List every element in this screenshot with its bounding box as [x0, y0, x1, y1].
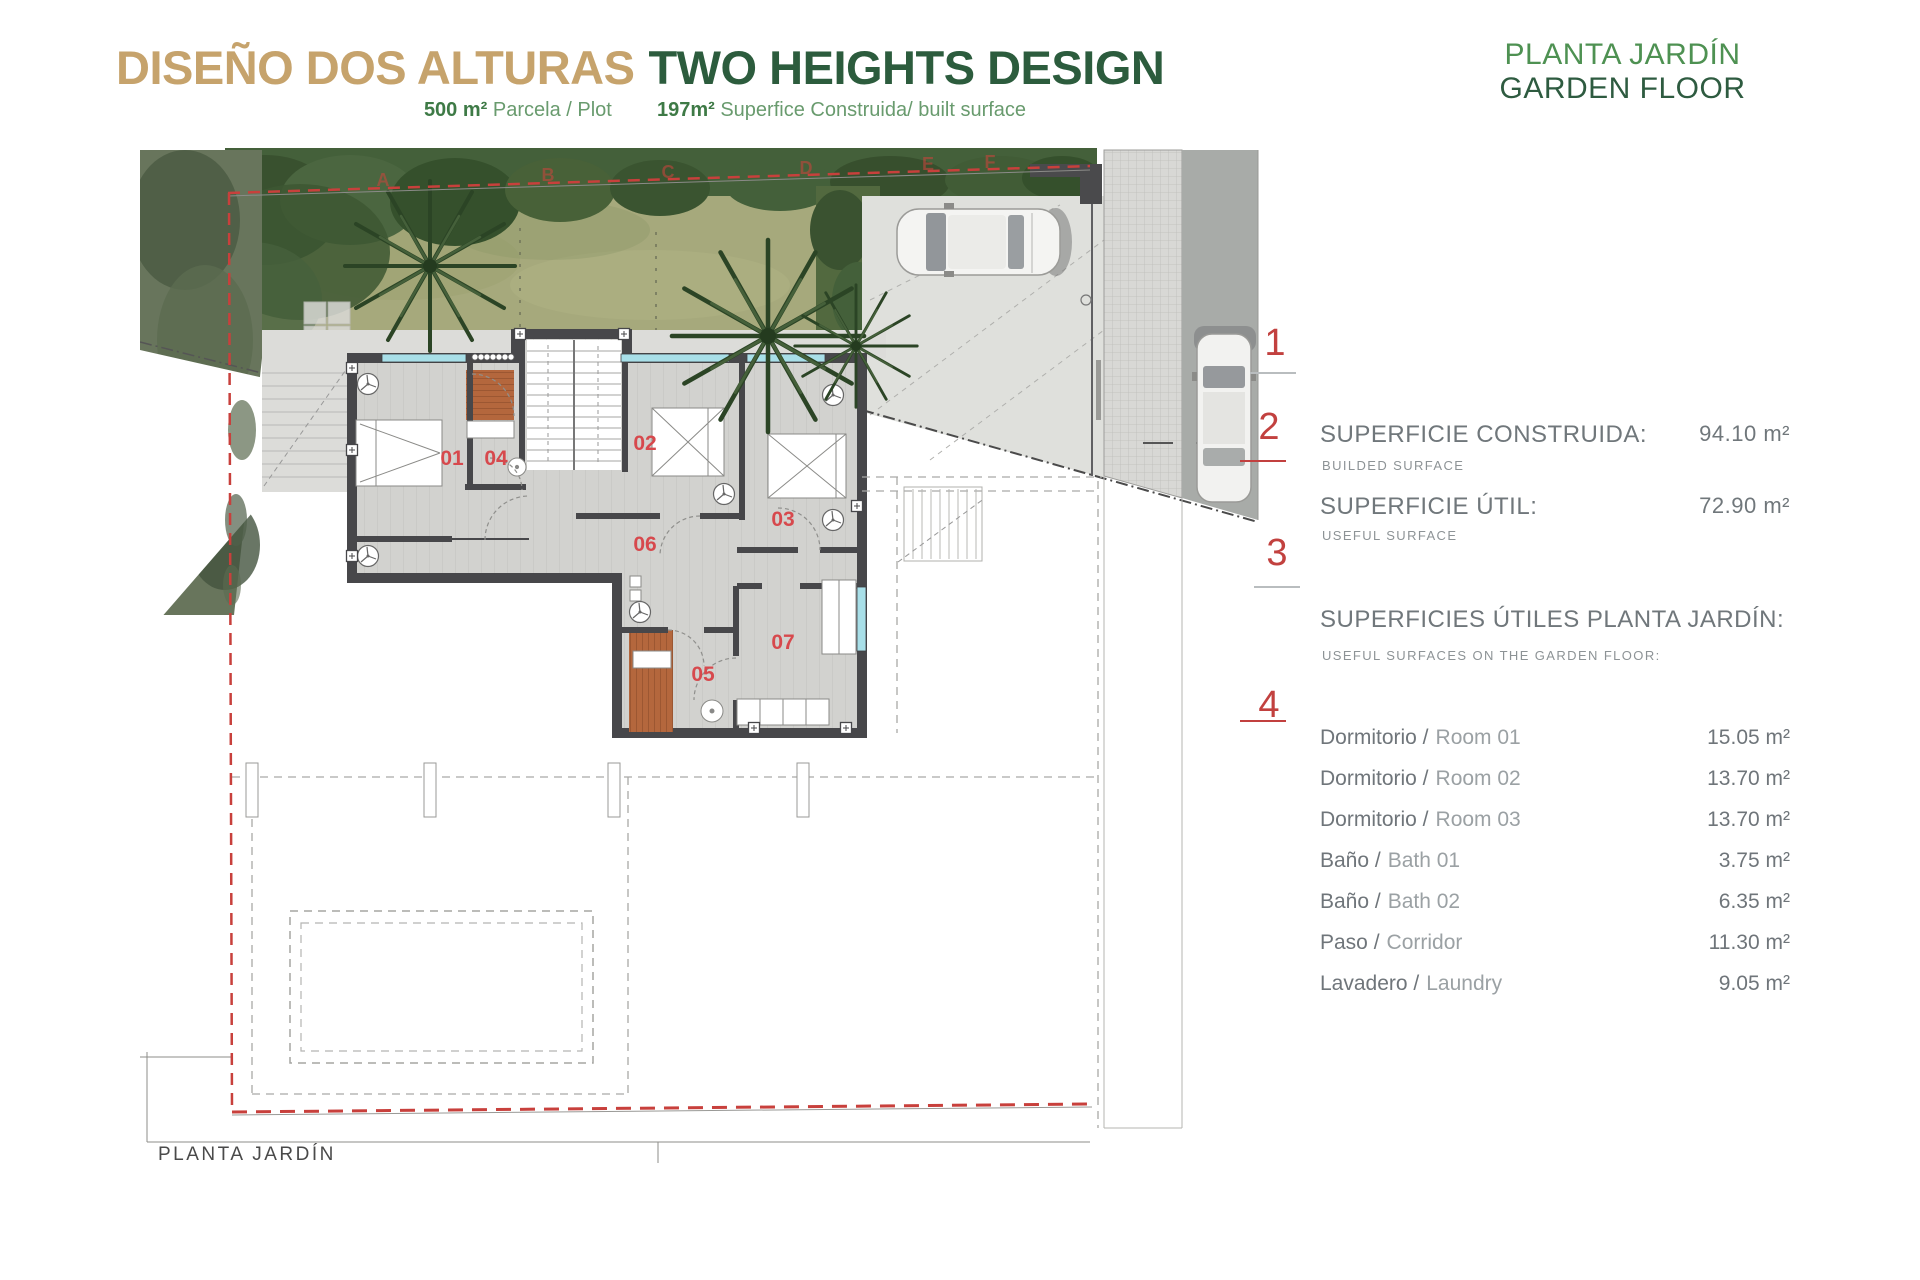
title-spanish: DISEÑO DOS ALTURAS [116, 41, 634, 94]
room-surface-row: Baño /Bath 013.75 m² [1320, 840, 1790, 881]
plot-subtitle: 500 m² Parcela / Plot 197m² Superfice Co… [300, 99, 1150, 122]
room-label-02: 02 [633, 432, 656, 455]
room-label-01: 01 [440, 447, 464, 470]
bed-room01 [356, 420, 442, 486]
plan-caption: PLANTA JARDÍN [158, 1144, 336, 1166]
bench-bath02 [633, 651, 671, 668]
built-size-value: 197m² [657, 99, 715, 121]
boundary-letter-e: E [922, 154, 934, 174]
built-surface-value: 94.10 m² [1699, 421, 1790, 449]
bath02-shower-floor [629, 630, 673, 732]
floor-title: PLANTA JARDÍN GARDEN FLOOR [1495, 38, 1750, 106]
marker-1: 1 [1252, 322, 1298, 365]
built-size-label: Superfice Construida/ built surface [720, 99, 1026, 121]
room-surface-row: Dormitorio /Room 0213.70 m² [1320, 758, 1790, 799]
room-surface-row: Dormitorio /Room 0115.05 m² [1320, 717, 1790, 758]
boundary-letter-d: D [800, 158, 813, 178]
car-top-view-driveway [897, 203, 1072, 277]
room-list-heading: SUPERFICIES ÚTILES PLANTA JARDÍN: [1320, 606, 1800, 634]
plot-size-label: Parcela / Plot [493, 99, 612, 121]
boundary-letter-c: C [662, 162, 675, 182]
built-surface-sublabel: BUILDED SURFACE [1322, 458, 1792, 473]
useful-surface-label: SUPERFICIE ÚTIL: [1320, 493, 1537, 521]
plot-size-value: 500 m² [424, 99, 487, 121]
driveway-area [862, 150, 1258, 1128]
room-label-03: 03 [771, 508, 794, 531]
room-surface-row: Baño /Bath 026.35 m² [1320, 881, 1790, 922]
useful-surface-row: SUPERFICIE ÚTIL: 72.90 m² [1320, 493, 1790, 521]
room-surface-list: Dormitorio /Room 0115.05 m² Dormitorio /… [1320, 717, 1790, 1004]
room-surface-row: Dormitorio /Room 0313.70 m² [1320, 799, 1790, 840]
brochure-page: DISEÑO DOS ALTURASTWO HEIGHTS DESIGN 500… [0, 0, 1920, 1280]
terrace-pillars [246, 763, 809, 817]
built-surface-row: SUPERFICIE CONSTRUIDA: 94.10 m² [1320, 421, 1790, 449]
room-label-06: 06 [633, 533, 656, 556]
floor-title-spanish: PLANTA JARDÍN [1495, 38, 1750, 72]
built-surface-label: SUPERFICIE CONSTRUIDA: [1320, 421, 1647, 449]
pool-outline [290, 911, 593, 1063]
exterior-stairs [898, 487, 985, 562]
useful-surface-sublabel: USEFUL SURFACE [1322, 528, 1792, 543]
floor-title-english: GARDEN FLOOR [1495, 72, 1750, 106]
room-label-05: 05 [691, 663, 715, 686]
page-title: DISEÑO DOS ALTURASTWO HEIGHTS DESIGN [116, 40, 1164, 95]
bath01-shower-floor [466, 370, 514, 420]
room-surface-row: Lavadero /Laundry9.05 m² [1320, 963, 1790, 1004]
room-surface-row: Paso /Corridor11.30 m² [1320, 922, 1790, 963]
room-list-subheading: USEFUL SURFACES ON THE GARDEN FLOOR: [1322, 648, 1792, 663]
sink-bath01 [467, 421, 514, 438]
marker-2: 2 [1246, 406, 1292, 449]
room-label-04: 04 [484, 447, 508, 470]
boundary-letter-a: A [377, 170, 390, 190]
room-label-07: 07 [771, 631, 794, 654]
boundary-letter-f: F [985, 152, 996, 172]
marker-3: 3 [1254, 532, 1300, 575]
floor-plan-drawing: A B C D E F 01 02 03 04 05 06 07 [140, 140, 1270, 1180]
useful-surface-value: 72.90 m² [1699, 493, 1790, 521]
house-plan [347, 329, 867, 734]
title-english: TWO HEIGHTS DESIGN [648, 41, 1164, 94]
boundary-letter-b: B [542, 165, 555, 185]
interior-stairs [527, 340, 621, 470]
